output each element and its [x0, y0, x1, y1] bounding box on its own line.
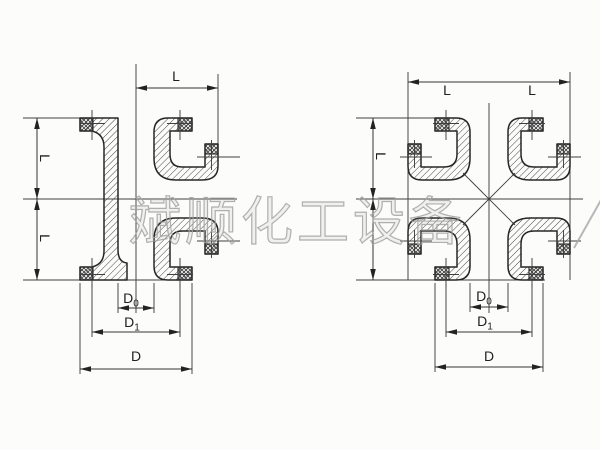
- left-section-view: L L L D0 D1 D: [23, 64, 240, 374]
- dim-label-length-top-left: L: [443, 82, 451, 98]
- drawing-page: L L L D0 D1 D: [0, 0, 600, 450]
- technical-drawing: L L L D0 D1 D: [0, 0, 600, 450]
- dim-label-flange-od: D: [131, 348, 141, 364]
- dim-label-bolt-circle: D1: [477, 313, 493, 333]
- dim-label-bolt-circle: D1: [124, 314, 140, 334]
- dim-label-length-lower-left: L: [37, 234, 53, 242]
- dim-label-length-upper-left: L: [37, 154, 53, 162]
- dim-label-flange-od: D: [484, 348, 494, 364]
- dim-label-length-left: L: [373, 152, 389, 160]
- dim-label-length-top-right: L: [528, 82, 536, 98]
- dim-label-bore-diameter: D0: [476, 288, 492, 308]
- right-section-view: L L L D0 D1 D: [356, 72, 583, 372]
- watermark-stroke: [574, 200, 600, 248]
- dim-label-length-top: L: [172, 68, 180, 84]
